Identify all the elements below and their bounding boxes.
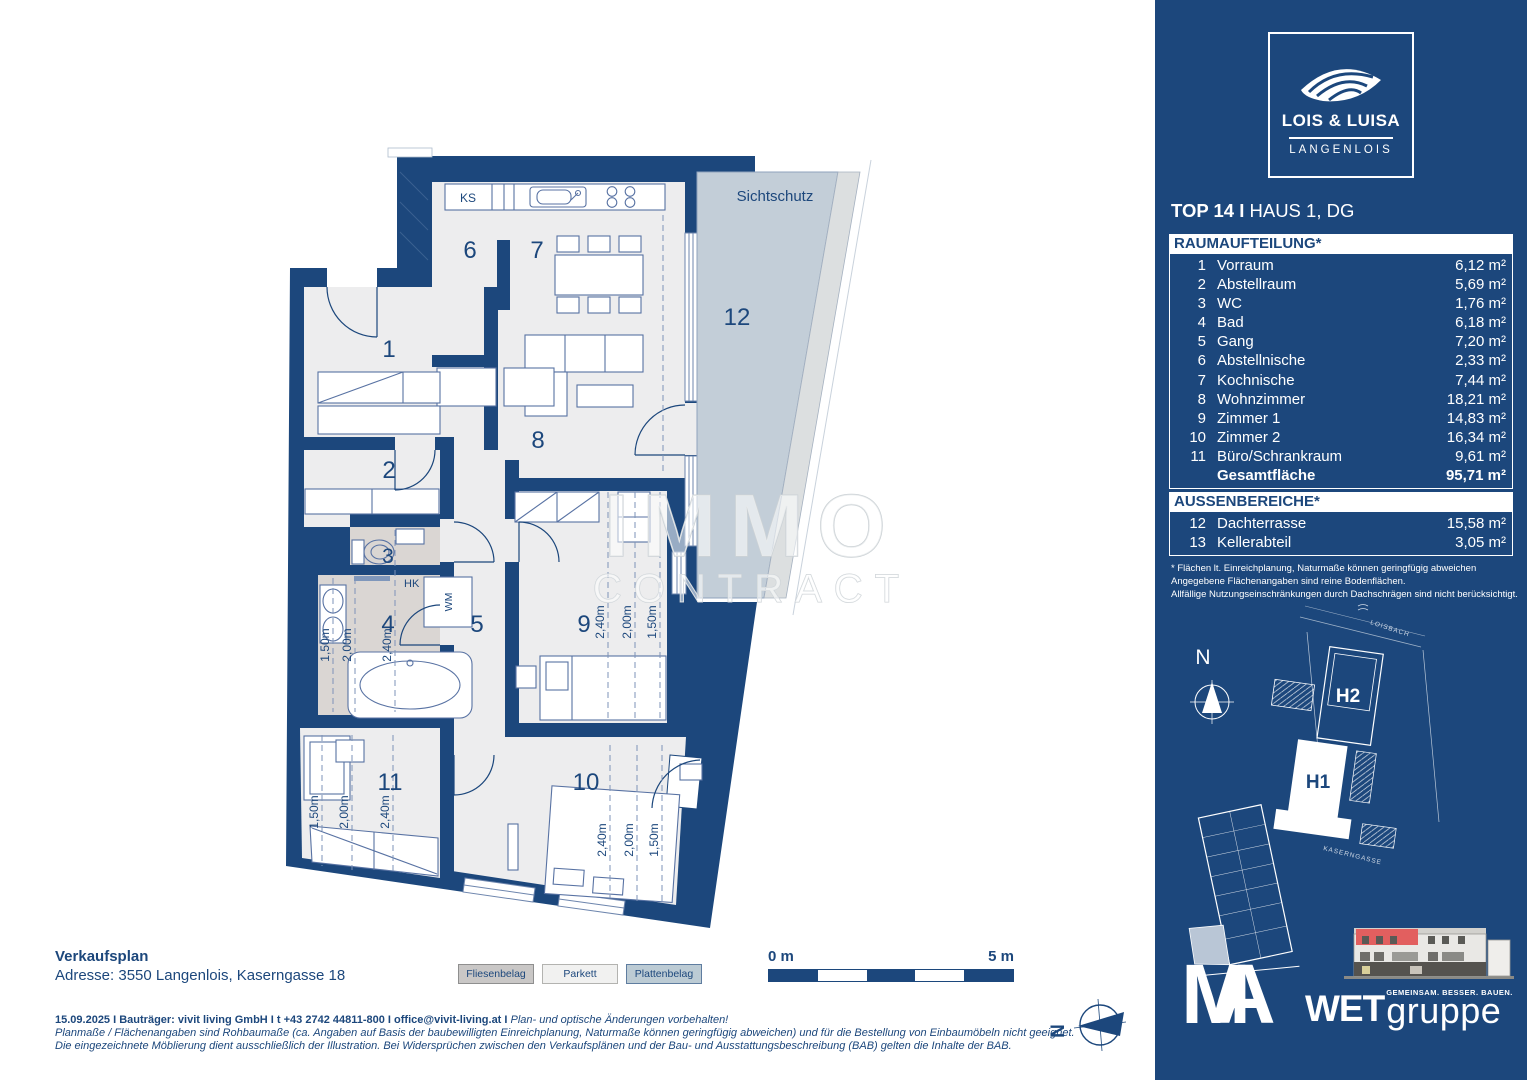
room-label-7: 7 — [530, 237, 543, 264]
plan-step-outline — [388, 148, 432, 157]
svg-text:1,50m: 1,50m — [307, 795, 321, 828]
room-label-9: 9 — [577, 611, 590, 638]
svg-text:2,40m: 2,40m — [595, 823, 609, 856]
room-label-11: 11 — [378, 769, 403, 796]
logo-title: LOIS & LUISA — [1282, 111, 1400, 131]
table-total-row: Gesamtfläche95,71 m² — [1170, 466, 1512, 485]
plan-address: Adresse: 3550 Langenlois, Kaserngasse 18 — [55, 967, 345, 984]
svg-text:2,00m: 2,00m — [622, 823, 636, 856]
legend-fliesenbelag: Fliesenbelag — [458, 964, 534, 984]
legend-parkett: Parkett — [542, 964, 618, 984]
hk-label: HK — [404, 578, 420, 590]
table-row: 10Zimmer 216,34 m² — [1170, 428, 1512, 447]
wm-label: WM — [443, 593, 455, 612]
ma-logo: MA — [1181, 952, 1276, 1036]
scale-bar: 0 m 5 m — [768, 948, 1014, 982]
svg-text:1,50m: 1,50m — [647, 823, 661, 856]
table-row: 4Bad6,18 m² — [1170, 313, 1512, 332]
svg-text:1,50m: 1,50m — [318, 628, 332, 661]
room-label-3: 3 — [382, 545, 394, 568]
table-row: 11Büro/Schrankraum9,61 m² — [1170, 447, 1512, 466]
legend-plattenbelag: Plattenbelag — [626, 964, 702, 984]
bathtub-icon — [348, 652, 472, 718]
logo-divider — [1289, 137, 1393, 139]
dining-table — [555, 255, 643, 295]
site-compass-icon — [1190, 680, 1234, 724]
svg-text:2,00m: 2,00m — [340, 628, 354, 661]
floor-legend: Fliesenbelag Parkett Plattenbelag — [458, 964, 702, 984]
sichtschutz-label: Sichtschutz — [737, 188, 814, 205]
fine-print: 15.09.2025 I Bauträger: vivit living Gmb… — [55, 1014, 1075, 1053]
table-row: 1Vorraum6,12 m² — [1170, 256, 1512, 275]
room-label-6: 6 — [463, 237, 476, 264]
svg-text:2,40m: 2,40m — [378, 795, 392, 828]
svg-text:CONTRACT: CONTRACT — [593, 567, 911, 611]
wetgruppe-logo: WET GEMEINSAM. BESSER. BAUEN. gruppe — [1305, 988, 1513, 1024]
site-h2-label: H2 — [1336, 686, 1360, 707]
plan-title: Verkaufsplan — [55, 948, 148, 965]
scale-start: 0 m — [768, 948, 794, 965]
toilet-icon — [352, 540, 364, 564]
svg-text:2,00m: 2,00m — [337, 795, 351, 828]
room-table: RAUMAUFTEILUNG* 1Vorraum6,12 m² 2Abstell… — [1169, 234, 1513, 489]
scale-bar-segments — [768, 969, 1014, 982]
immo-contract-watermark: IMMO CONTRACT — [593, 476, 911, 611]
room-label-1: 1 — [382, 336, 395, 363]
unit-title: TOP 14 I HAUS 1, DG — [1171, 200, 1354, 222]
svg-text:IMMO: IMMO — [604, 476, 900, 575]
ks-label: KS — [460, 191, 476, 205]
room-label-10: 10 — [573, 769, 600, 796]
table-row: 6Abstellnische2,33 m² — [1170, 351, 1512, 370]
room-label-12: 12 — [724, 304, 751, 331]
room-label-2: 2 — [382, 457, 395, 484]
table-row: 12Dachterrasse15,58 m² — [1170, 514, 1512, 533]
logo-subtitle: LANGENLOIS — [1289, 144, 1393, 156]
table-row: 5Gang7,20 m² — [1170, 332, 1512, 351]
building-elevation — [1340, 912, 1520, 992]
room-label-8: 8 — [531, 427, 544, 454]
table-row: 8Wohnzimmer18,21 m² — [1170, 390, 1512, 409]
lois-luisa-logo: LOIS & LUISA LANGENLOIS — [1268, 32, 1414, 178]
room-table-header: RAUMAUFTEILUNG* — [1169, 234, 1513, 254]
site-north-label: N — [1195, 646, 1210, 669]
table-row: 9Zimmer 114,83 m² — [1170, 409, 1512, 428]
room-label-4: 4 — [381, 611, 394, 638]
sidebar: LOIS & LUISA LANGENLOIS TOP 14 I HAUS 1,… — [1155, 0, 1527, 1080]
table-row: 13Kellerabteil3,05 m² — [1170, 533, 1512, 552]
floor-plan: 1,50m 2,00m 2,40m 1,50m 2,00m 2,40m 2,40… — [0, 0, 1150, 940]
outdoor-table-header: AUSSENBEREICHE* — [1169, 492, 1513, 512]
table-row: 7Kochnische7,44 m² — [1170, 371, 1512, 390]
outdoor-table: AUSSENBEREICHE* 12Dachterrasse15,58 m² 1… — [1169, 492, 1513, 556]
table-row: 2Abstellraum5,69 m² — [1170, 275, 1512, 294]
room-label-5: 5 — [470, 611, 483, 638]
sofa — [525, 335, 643, 372]
site-h1-label: H1 — [1306, 772, 1331, 793]
coffee-table — [577, 385, 633, 407]
site-street-label: KASERNGASSE — [1323, 845, 1383, 866]
verkaufsplan-page: { "plan": { "rooms": ["1","2","3","4","5… — [0, 0, 1527, 1080]
table-row: 3WC1,76 m² — [1170, 294, 1512, 313]
scale-end: 5 m — [988, 948, 1014, 965]
vineyard-hill-icon — [1295, 60, 1387, 102]
